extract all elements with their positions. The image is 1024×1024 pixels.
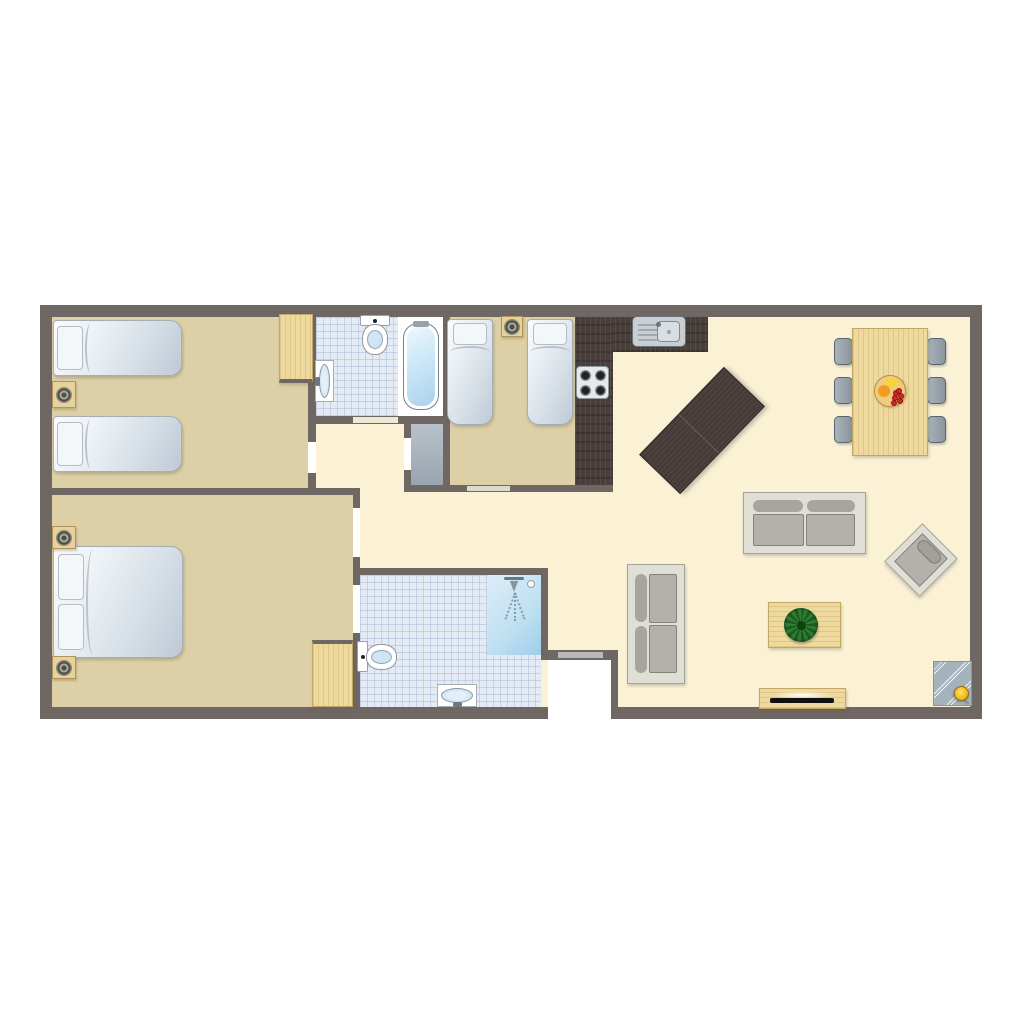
duvet xyxy=(449,348,491,423)
duvet-fold xyxy=(85,419,97,469)
sofa-two-seater xyxy=(627,564,685,684)
tub-interior xyxy=(407,327,435,406)
seat-cushion xyxy=(649,625,677,673)
tap-icon xyxy=(315,377,320,386)
faucet-icon xyxy=(656,322,661,327)
door-opening-bedroom2 xyxy=(467,486,510,491)
burner-icon xyxy=(595,370,606,381)
dining-chair xyxy=(834,416,853,443)
wall-bathroom-bottom-right xyxy=(541,575,548,660)
door-opening-closet xyxy=(404,438,411,470)
seat-cushion xyxy=(753,514,804,546)
dining-chair xyxy=(834,377,853,404)
bathtub xyxy=(403,323,439,410)
floor-entrance-alcove xyxy=(548,660,611,719)
seat-cushion xyxy=(806,514,856,546)
shower xyxy=(487,575,541,655)
pillow xyxy=(57,422,83,466)
fruit-orange xyxy=(878,385,890,397)
duvet xyxy=(88,548,181,656)
nightstand xyxy=(52,656,76,679)
drain-icon xyxy=(667,330,671,334)
door-opening-bedroom1 xyxy=(308,442,316,473)
sofa-two-seater xyxy=(743,492,866,554)
burner-icon xyxy=(580,385,591,396)
pillow xyxy=(58,554,84,600)
back-cushion xyxy=(635,574,647,622)
flush-button-icon xyxy=(361,655,365,659)
television xyxy=(770,691,834,703)
single-bed xyxy=(53,416,182,472)
washbasin xyxy=(315,360,334,402)
kitchen-sink xyxy=(632,316,686,347)
wardrobe xyxy=(279,314,313,383)
floor-storage-closet xyxy=(411,424,443,485)
wall-outer-bottom-west xyxy=(40,707,548,719)
toilet-bowl xyxy=(362,324,388,355)
table-lamp-icon xyxy=(56,387,72,403)
washbasin xyxy=(437,684,477,707)
wardrobe xyxy=(312,640,353,707)
shower-rail xyxy=(504,577,524,580)
fruit-bowl xyxy=(874,375,906,407)
single-bed xyxy=(527,319,573,425)
dining-chair xyxy=(927,416,946,443)
fruit-grape xyxy=(891,400,897,406)
dining-chair xyxy=(927,377,946,404)
flush-button-icon xyxy=(373,319,377,323)
shower-control-icon xyxy=(527,580,535,588)
kitchen-counter-side xyxy=(575,317,613,488)
duvet-fold xyxy=(85,323,97,373)
entrance-mat xyxy=(933,661,972,706)
fruit-grape xyxy=(896,388,902,394)
basin xyxy=(441,688,473,703)
wall-alcove-right xyxy=(611,650,618,719)
table-lamp-icon xyxy=(56,660,72,676)
tv-screen xyxy=(770,698,834,703)
duvet xyxy=(87,322,180,374)
single-bed xyxy=(447,319,493,425)
duvet-fold xyxy=(86,549,100,655)
nightstand xyxy=(52,381,76,408)
floor-plan xyxy=(0,0,1024,1024)
duvet xyxy=(87,418,180,470)
tap-icon xyxy=(453,702,462,707)
burner-icon xyxy=(595,385,606,396)
back-cushion xyxy=(807,500,856,512)
toilet xyxy=(357,641,399,672)
back-cushion xyxy=(753,500,803,512)
shower-head-icon xyxy=(508,581,520,592)
wall-lamp-icon xyxy=(954,686,969,701)
wall-outer-left xyxy=(40,305,52,719)
front-door xyxy=(558,652,603,658)
dining-chair xyxy=(834,338,853,365)
toilet xyxy=(360,315,390,357)
pillow xyxy=(533,323,567,345)
tap-icon xyxy=(413,321,429,327)
table-divider xyxy=(679,414,719,453)
dining-chair xyxy=(927,338,946,365)
pillow xyxy=(453,323,487,345)
wall-bathroom-bottom-north xyxy=(353,568,548,575)
stove-cooktop xyxy=(576,366,609,399)
duvet xyxy=(529,348,571,423)
wall-outer-right xyxy=(970,305,982,719)
drainboard xyxy=(638,322,658,341)
pillow xyxy=(57,326,83,370)
nightstand xyxy=(501,316,523,337)
toilet-bowl xyxy=(366,644,397,670)
fruit-lemon xyxy=(885,378,899,387)
fruit-grape xyxy=(897,398,903,404)
table-lamp-icon xyxy=(504,319,520,335)
duvet-fold xyxy=(450,346,490,358)
door-opening-ensuite xyxy=(353,585,360,633)
door-opening-bathroom-top xyxy=(353,417,398,423)
duvet-fold xyxy=(530,346,570,358)
wall-master-north xyxy=(40,488,360,495)
nightstand xyxy=(52,526,76,549)
burner-icon xyxy=(580,370,591,381)
back-cushion xyxy=(635,626,647,673)
table-lamp-icon xyxy=(56,530,72,546)
door-opening-master xyxy=(353,508,360,557)
single-bed xyxy=(53,320,182,376)
seat-cushion xyxy=(649,574,677,623)
double-bed xyxy=(53,546,183,658)
pillow xyxy=(58,604,84,650)
basin xyxy=(319,364,330,398)
